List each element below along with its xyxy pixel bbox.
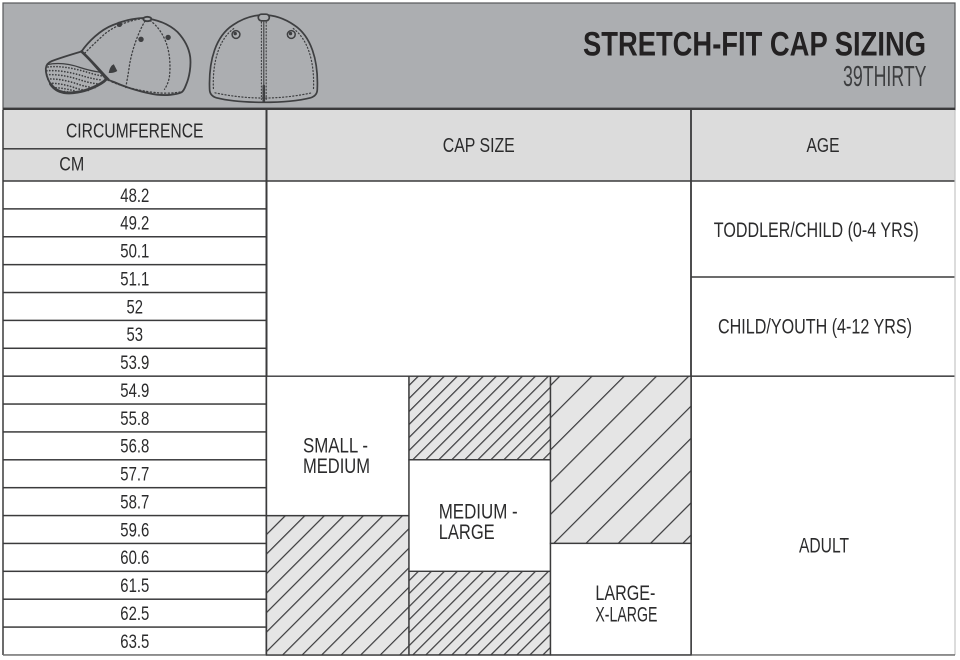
svg-text:53: 53: [127, 324, 144, 346]
svg-text:49.2: 49.2: [120, 213, 149, 235]
svg-text:ADULT: ADULT: [799, 533, 849, 557]
svg-text:52: 52: [127, 296, 144, 318]
svg-text:LARGE-: LARGE-: [595, 582, 655, 605]
svg-text:63.5: 63.5: [120, 631, 149, 653]
svg-text:48.2: 48.2: [120, 185, 149, 207]
svg-text:59.6: 59.6: [120, 519, 149, 541]
svg-text:STRETCH-FIT CAP SIZING: STRETCH-FIT CAP SIZING: [583, 26, 926, 64]
svg-text:CIRCUMFERENCE: CIRCUMFERENCE: [66, 120, 204, 143]
svg-text:CAP SIZE: CAP SIZE: [443, 134, 515, 157]
svg-text:CM: CM: [59, 154, 84, 176]
svg-text:51.1: 51.1: [120, 268, 149, 290]
svg-text:54.9: 54.9: [120, 380, 149, 402]
svg-text:X-LARGE: X-LARGE: [595, 604, 657, 627]
svg-text:57.7: 57.7: [120, 464, 149, 486]
svg-text:53.9: 53.9: [120, 352, 149, 374]
svg-text:AGE: AGE: [807, 134, 840, 157]
svg-text:50.1: 50.1: [120, 241, 149, 263]
svg-text:55.8: 55.8: [120, 408, 149, 430]
svg-text:TODDLER/CHILD (0-4 YRS): TODDLER/CHILD (0-4 YRS): [714, 218, 919, 242]
svg-text:MEDIUM: MEDIUM: [303, 455, 370, 478]
svg-text:58.7: 58.7: [120, 491, 149, 513]
svg-text:LARGE: LARGE: [439, 521, 495, 544]
svg-text:62.5: 62.5: [120, 603, 149, 625]
svg-text:60.6: 60.6: [120, 547, 149, 569]
svg-text:CHILD/YOUTH (4-12 YRS): CHILD/YOUTH (4-12 YRS): [718, 314, 912, 338]
svg-text:56.8: 56.8: [120, 436, 149, 458]
svg-text:39THIRTY: 39THIRTY: [843, 61, 927, 93]
svg-text:61.5: 61.5: [120, 575, 149, 597]
